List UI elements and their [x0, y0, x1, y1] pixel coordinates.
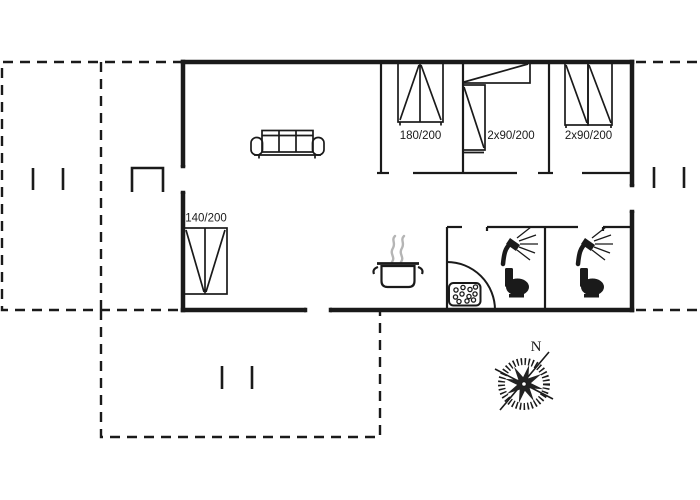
bench-marks-bottom	[222, 366, 252, 389]
steam-icon	[392, 236, 404, 262]
toilet-icon-bath1	[505, 268, 529, 298]
grill-bracket	[132, 168, 163, 192]
cooking-pot-icon	[374, 264, 423, 288]
floorplan-drawing: 180/200 2x90/200 2x90/200 140/200	[0, 0, 700, 500]
shower-corner-arc	[447, 262, 495, 310]
terrace-left-outline	[2, 62, 183, 310]
window-opening-right	[630, 185, 635, 212]
window-opening-left	[181, 166, 186, 193]
compass-rose-icon	[495, 352, 553, 410]
bed-bunk-middle-label: 2x90/200	[487, 130, 534, 142]
bench-marks-left	[33, 168, 63, 190]
compass-north-label: N	[531, 339, 542, 355]
sofa-icon	[251, 131, 324, 159]
interior-walls-bathrooms	[447, 227, 632, 310]
bed-single	[184, 228, 227, 294]
bed-bunk-right-label: 2x90/200	[565, 130, 612, 142]
bed-bunk-right	[565, 63, 612, 128]
toilet-icon-bath2	[580, 268, 604, 298]
terrace-right-outline	[636, 62, 700, 310]
bed-double-label: 180/200	[400, 130, 442, 142]
entrance-door-opening	[305, 308, 331, 313]
shower-icon-bath1	[503, 227, 538, 264]
bench-marks-right	[654, 167, 684, 188]
bed-double	[398, 63, 443, 126]
bed-single-label: 140/200	[185, 213, 227, 225]
shower-icon-bath2	[578, 227, 613, 264]
shower-drain-icon	[449, 283, 481, 306]
terrace-bottom-outline	[101, 310, 380, 437]
floorplan-canvas: 180/200 2x90/200 2x90/200 140/200	[0, 0, 700, 500]
